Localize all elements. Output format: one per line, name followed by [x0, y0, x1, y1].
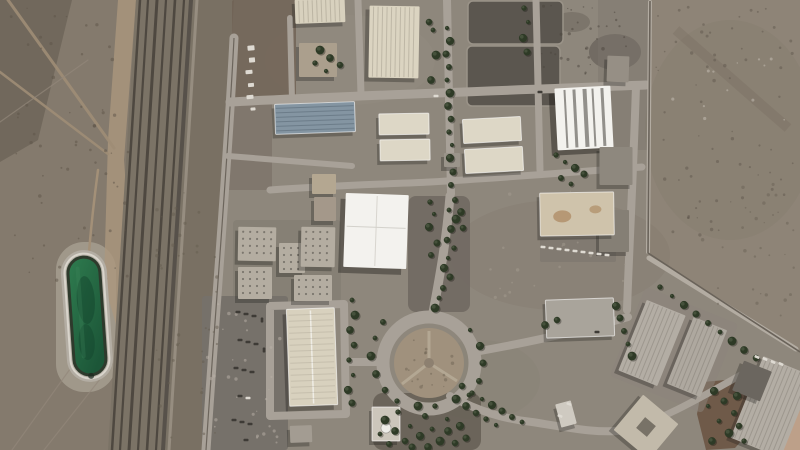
north-street-a [290, 18, 292, 100]
long-hall-wing [287, 425, 313, 447]
warehouse-north-a [292, 0, 346, 28]
main-white-hall [338, 193, 409, 275]
north-street-b [358, 0, 361, 94]
mosque [369, 407, 400, 445]
vehicle-light [434, 95, 439, 98]
vehicle-dark [263, 348, 266, 353]
vehicle-dark [240, 421, 245, 424]
vehicle-dark [595, 331, 600, 334]
fenced-yard-north-b [467, 46, 560, 106]
vehicle-light [248, 83, 254, 88]
satellite-scene [0, 0, 800, 450]
vehicle-dark [238, 395, 243, 398]
island-center [424, 358, 434, 368]
warehouse-white-striped [548, 86, 613, 156]
water-reservoir [59, 249, 114, 384]
vehicle-light [247, 45, 254, 51]
vehicle-dark [236, 311, 241, 314]
vehicle-light [564, 249, 569, 252]
vehicle-light [604, 254, 609, 257]
north-street-d [536, 0, 540, 170]
gray-block-a [597, 147, 633, 189]
vehicle-dark [254, 343, 259, 346]
vehicle-light [556, 248, 561, 251]
vehicle-light [540, 246, 545, 249]
block-cluster-d [298, 227, 336, 272]
warehouse-north-large [364, 5, 419, 82]
twin-bar-east-2 [461, 146, 523, 177]
vehicle-dark [261, 318, 264, 323]
vehicle-light [596, 253, 601, 256]
vehicle-light [250, 107, 255, 110]
twin-bar-west-1 [376, 113, 429, 139]
vehicle-light [548, 247, 553, 250]
office-small-b [311, 197, 336, 225]
vehicle-dark [244, 313, 249, 316]
block-cluster-c [235, 267, 272, 303]
vehicle-dark [234, 367, 239, 370]
vehicle-light [246, 397, 251, 400]
long-hall-south [282, 308, 338, 412]
utility-square [603, 56, 629, 87]
vehicle-dark [232, 419, 237, 422]
vehicle-dark [538, 91, 543, 94]
warehouse-tan-stained [537, 192, 615, 240]
warehouse-east-flat [542, 298, 614, 342]
fenced-yard-north-a [468, 1, 563, 44]
vehicle-dark [246, 341, 251, 344]
vehicle-light [588, 252, 593, 255]
vehicle-dark [242, 369, 247, 372]
vehicle-dark [252, 315, 257, 318]
vehicle-light [246, 95, 253, 100]
twin-bar-east-1 [459, 116, 521, 147]
warehouse-bluegray [272, 102, 356, 139]
dark-lot-west [228, 104, 272, 190]
vehicle-dark [248, 423, 253, 426]
twin-bar-west-2 [377, 139, 430, 165]
office-small-a [309, 174, 336, 198]
block-cluster-a [235, 227, 277, 266]
vehicle-light [572, 250, 577, 253]
vehicle-light [580, 251, 585, 254]
vehicle-dark [244, 439, 249, 442]
block-cluster-e [291, 275, 332, 305]
dirt-lot-northwest [232, 0, 296, 98]
vehicle-light [249, 57, 255, 63]
satellite-image [0, 0, 800, 450]
vehicle-dark [250, 371, 255, 374]
vehicle-dark [238, 339, 243, 342]
vehicle-light [245, 70, 252, 75]
